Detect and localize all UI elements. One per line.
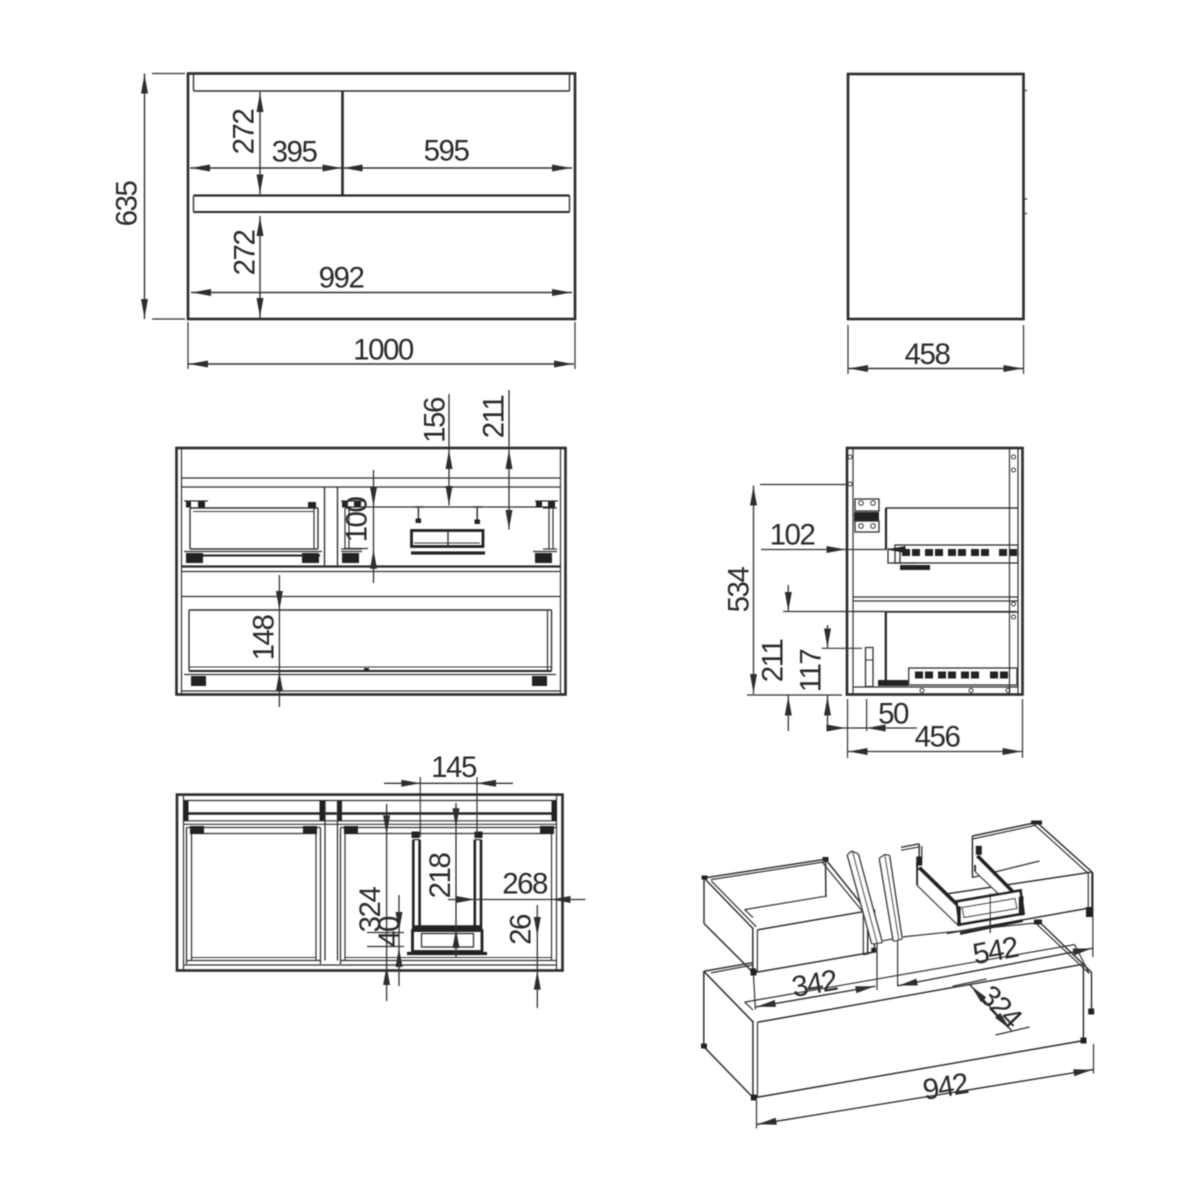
svg-text:1000: 1000 [353,333,414,366]
svg-text:395: 395 [272,135,318,168]
svg-text:148: 148 [247,615,280,661]
svg-text:26: 26 [504,914,537,945]
svg-text:458: 458 [905,338,951,371]
svg-text:156: 156 [418,397,451,443]
svg-text:218: 218 [424,853,457,899]
svg-text:635: 635 [110,181,143,227]
svg-text:100: 100 [340,497,373,543]
svg-text:456: 456 [915,720,961,753]
svg-text:117: 117 [794,650,827,693]
svg-text:992: 992 [319,261,364,294]
svg-text:102: 102 [770,518,815,551]
svg-text:534: 534 [722,567,755,613]
svg-text:268: 268 [502,867,548,900]
svg-text:211: 211 [477,396,510,439]
svg-text:50: 50 [878,697,909,730]
svg-text:145: 145 [431,751,477,784]
svg-text:595: 595 [424,134,470,167]
svg-text:40: 40 [373,916,406,947]
svg-text:272: 272 [227,110,260,155]
svg-text:211: 211 [756,640,789,683]
svg-text:272: 272 [228,231,261,276]
